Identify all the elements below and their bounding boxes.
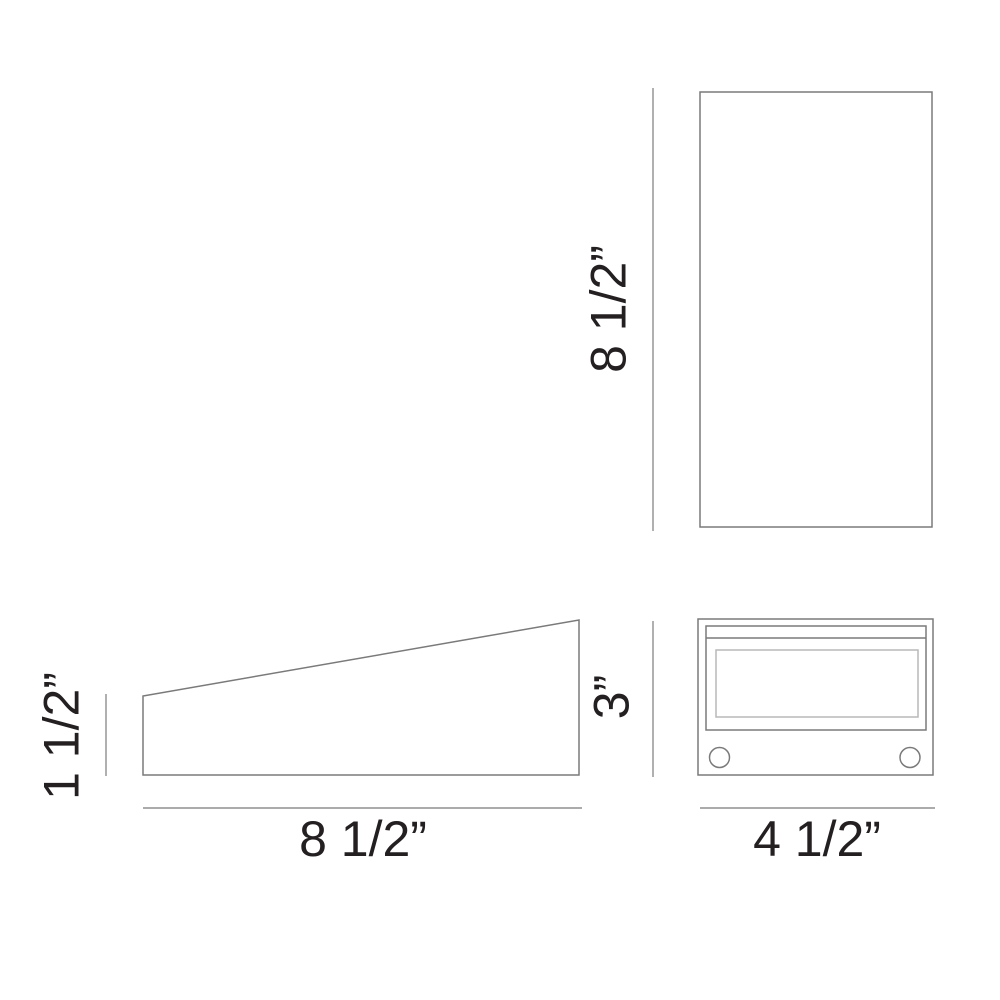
top-view-outline [700, 92, 932, 527]
front-view-inner-frame [706, 626, 926, 730]
front-view-lens [716, 650, 918, 717]
front-view: 3” 4 1/2” [584, 619, 936, 867]
front-view-height-label: 3” [584, 675, 640, 719]
side-view-length-label: 8 1/2” [299, 811, 427, 867]
dimension-drawing: 8 1/2” 1 1/2” 8 1/2” 3” 4 1/2” [0, 0, 1000, 1000]
side-view-back-height-label: 1 1/2” [34, 672, 90, 800]
front-view-screw-left [710, 748, 730, 768]
side-view-wedge-outline [143, 620, 579, 775]
drawing-canvas: 8 1/2” 1 1/2” 8 1/2” 3” 4 1/2” [0, 0, 1000, 1000]
front-view-width-label: 4 1/2” [753, 811, 881, 867]
top-view-height-label: 8 1/2” [581, 245, 637, 373]
front-view-outline [698, 619, 933, 775]
side-view: 1 1/2” 8 1/2” [34, 620, 583, 867]
top-view: 8 1/2” [581, 88, 933, 531]
front-view-screw-right [900, 748, 920, 768]
